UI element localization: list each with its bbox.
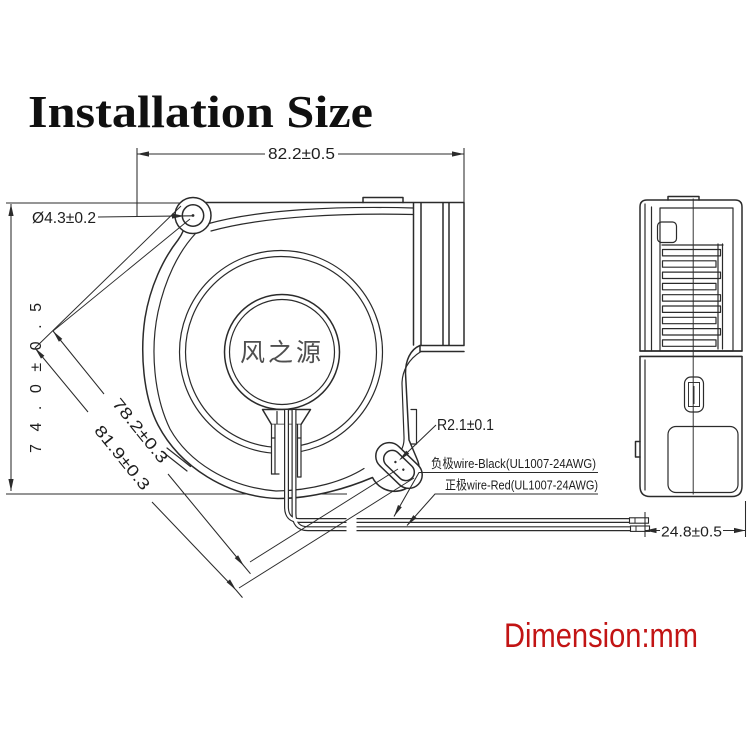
page-title: Installation Size — [28, 86, 373, 137]
wire-negative-label: 负极wire-Black(UL1007-24AWG) — [431, 456, 596, 471]
dim-width-label: 82.2±0.5 — [268, 146, 335, 163]
dimension-depth: 24.8±0.5 — [645, 501, 746, 541]
drawing-page: Installation Size — [0, 0, 750, 750]
blower-side-view: 24.8±0.5 — [636, 197, 746, 541]
dimension-width: 82.2±0.5 — [137, 146, 464, 163]
dim-hole-label: Ø4.3±0.2 — [32, 210, 96, 227]
technical-drawing-canvas: Installation Size — [0, 0, 750, 750]
wire-callouts: 负极wire-Black(UL1007-24AWG) 正极wire-Red(UL… — [394, 456, 598, 526]
impeller-hub: 风之源 — [225, 295, 340, 410]
dim-slot-radius-label: R2.1±0.1 — [437, 417, 494, 434]
dim-depth-label: 24.8±0.5 — [661, 525, 722, 541]
wire-black-tip — [630, 518, 649, 523]
unit-note: Dimension:mm — [504, 617, 698, 655]
outlet-lip — [420, 346, 464, 352]
dimension-height: 74.0±0.5 — [8, 204, 45, 491]
dimension-hole-callout: Ø4.3±0.2 — [32, 210, 193, 227]
side-rib — [411, 410, 417, 445]
hub-brand-label: 风之源 — [240, 339, 324, 367]
wire-positive-label: 正极wire-Red(UL1007-24AWG) — [445, 478, 598, 493]
blower-front-view: 风之源 — [6, 146, 650, 598]
dim-height-label: 74.0±0.5 — [28, 303, 45, 453]
